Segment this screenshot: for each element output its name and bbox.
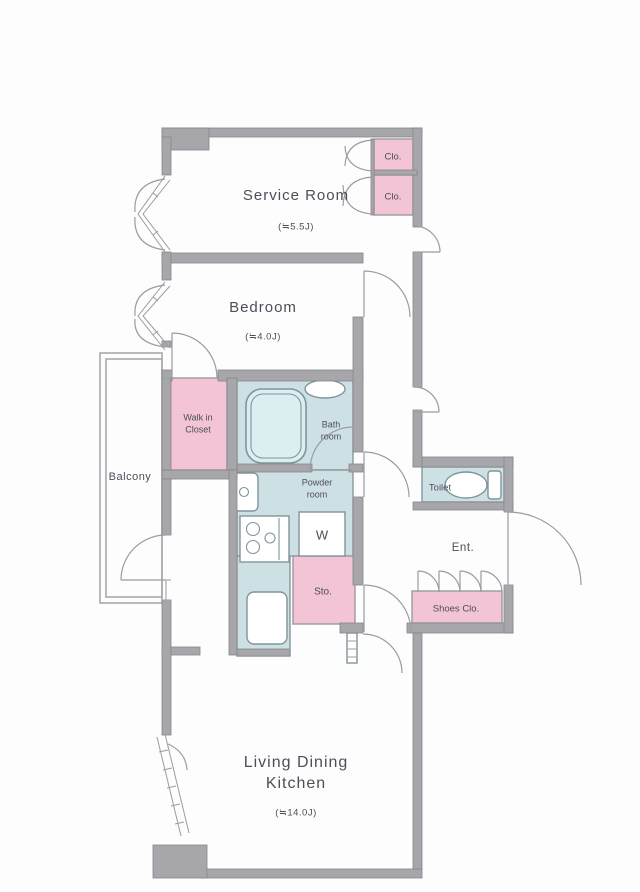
wall-entrance-south xyxy=(407,623,513,633)
floor-plan-drawing: Service Room (≒5.5J) Bedroom (≒4.0J) Liv… xyxy=(0,0,640,892)
bedroom-label: Bedroom xyxy=(229,299,297,316)
wall-kitchen-west xyxy=(229,470,237,655)
wall-kitchen-bottom xyxy=(237,649,290,656)
washer-label: W xyxy=(316,527,329,542)
bedroom-size: (≒4.0J) xyxy=(245,332,281,343)
wall-bath-south xyxy=(237,464,312,472)
window-corridor-top xyxy=(414,226,440,252)
wall-left-d xyxy=(162,378,171,470)
wall-left-a xyxy=(162,137,171,175)
wic-label-line2: Closet xyxy=(185,424,211,434)
wall-bottom-left-pillar xyxy=(153,845,207,878)
door-ldk xyxy=(363,585,411,673)
room-fills xyxy=(170,139,504,656)
wall-wic-east xyxy=(227,378,237,470)
bath-sink xyxy=(305,380,345,398)
counter-hatch xyxy=(347,633,357,663)
balcony-label: Balcony xyxy=(109,471,152,483)
ldk-label-line1: Living Dining xyxy=(244,754,349,771)
bath-label-line1: Bath xyxy=(322,419,341,429)
wall-right-a xyxy=(413,128,422,227)
toilet-bowl xyxy=(445,472,487,498)
floor-plan-page: Service Room (≒5.5J) Bedroom (≒4.0J) Liv… xyxy=(0,0,640,892)
toilet-tank xyxy=(488,471,501,499)
wall-right-c xyxy=(413,410,422,467)
powder-label-line2: room xyxy=(307,489,328,499)
wall-toilet-north xyxy=(413,457,513,467)
wic-label-line1: Walk in xyxy=(183,412,212,422)
ldk-label-line2: Kitchen xyxy=(266,775,326,792)
kitchen-sink xyxy=(247,592,287,644)
wall-right-d xyxy=(413,633,422,869)
wall-bedroom-east xyxy=(353,317,363,452)
door-closet-top-bifold xyxy=(345,140,374,171)
wall-toilet-south xyxy=(413,502,513,510)
wall-entrance-right-bottom xyxy=(504,585,513,633)
window-corridor-bottom xyxy=(414,387,439,412)
wall-right-b xyxy=(413,252,422,387)
wall-entrance-right-top xyxy=(504,457,513,512)
bay-window-ldk xyxy=(157,734,189,836)
wall-left-f xyxy=(162,600,171,735)
wall-corridor-south xyxy=(340,623,363,633)
door-powder xyxy=(364,452,409,497)
wall-bedroom-south xyxy=(218,370,363,381)
wall-bottom xyxy=(200,869,422,878)
door-shoes-closet-folding xyxy=(418,571,502,592)
door-entrance xyxy=(508,512,581,585)
wall-corridor-west xyxy=(353,497,363,585)
closet-bottom-label: Clo. xyxy=(385,192,402,203)
wall-serviceroom-south xyxy=(162,253,363,263)
closet-top-label: Clo. xyxy=(385,152,402,163)
bay-window-bedroom xyxy=(135,282,170,350)
bath-label-line2: room xyxy=(321,431,342,441)
entrance-label: Ent. xyxy=(452,542,474,554)
wall-wic-south xyxy=(162,470,237,479)
toilet-label: Toilet xyxy=(429,483,452,494)
storage-label: Sto. xyxy=(314,587,332,598)
bay-window-service-room xyxy=(135,176,170,252)
service-room-size: (≒5.5J) xyxy=(278,222,314,233)
wall-closet-divider xyxy=(371,170,417,175)
door-bedroom xyxy=(364,271,410,317)
door-bedroom-wic xyxy=(172,333,217,378)
stove xyxy=(240,516,289,562)
service-room-label: Service Room xyxy=(243,187,349,204)
wall-bath-south-right xyxy=(349,464,363,472)
shoes-closet-label: Shoes Clo. xyxy=(433,604,479,615)
door-balcony-ldk xyxy=(121,535,166,580)
ldk-size: (≒14.0J) xyxy=(275,808,317,819)
bathtub xyxy=(246,389,306,463)
powder-label-line1: Powder xyxy=(302,477,333,487)
wall-left-e xyxy=(162,479,171,535)
wall-left-b xyxy=(162,252,171,280)
